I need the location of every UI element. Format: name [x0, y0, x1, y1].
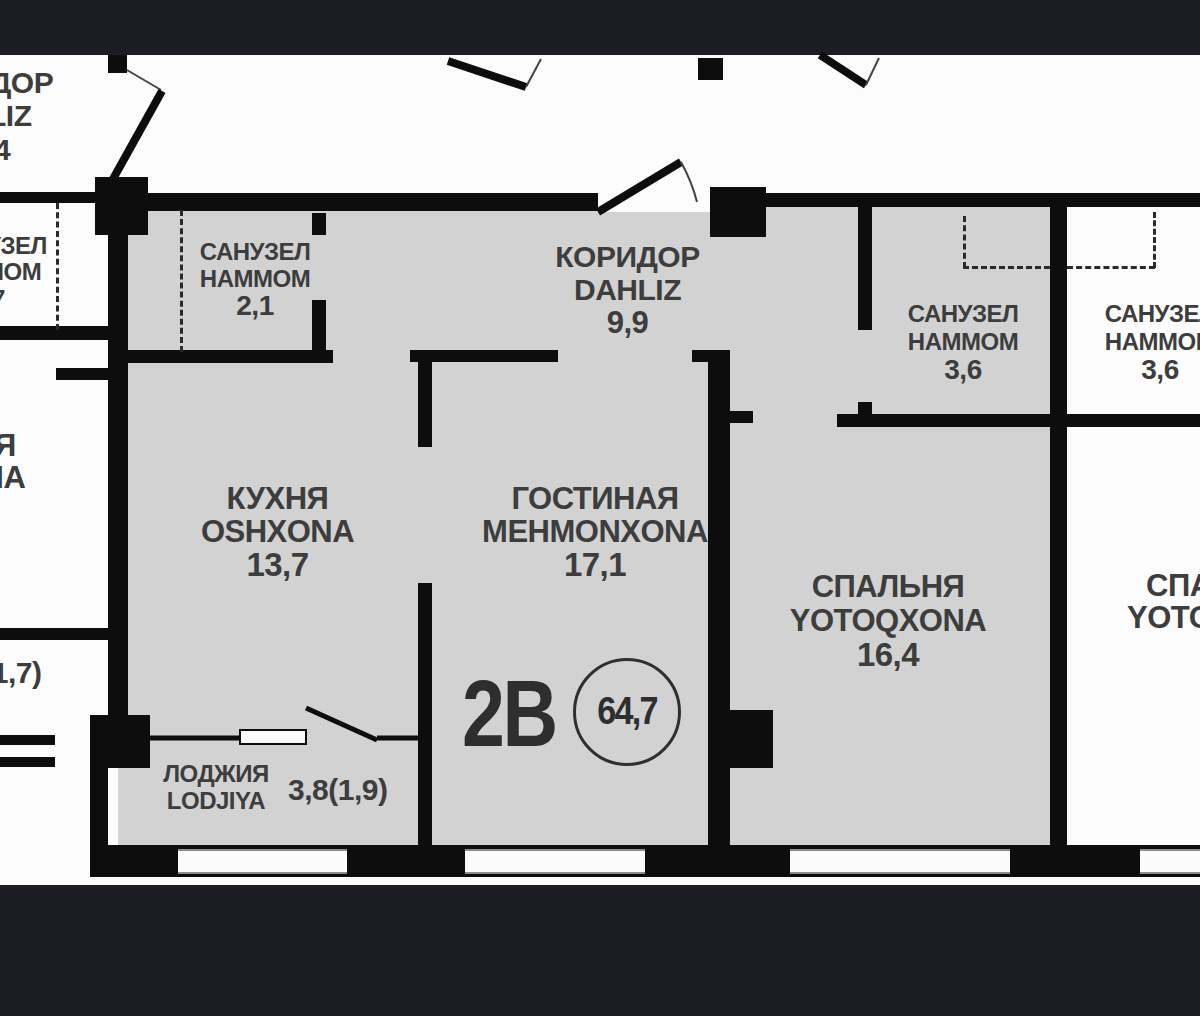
- room-name-uz: DAHLIZ: [530, 273, 725, 306]
- bath-main-wall: [858, 207, 872, 330]
- room-name-ru: КОРИДОР: [530, 240, 725, 273]
- room-name-uz: YOTOQXONA: [745, 604, 1031, 638]
- floor-plan-screenshot: САНУЗЕЛ HAMMOM 2,1 КОРИДОР DAHLIZ 9,9 КУ…: [0, 0, 1200, 1016]
- neighbor-corridor-area: 4: [0, 133, 10, 167]
- room-label-corridor: КОРИДОР DAHLIZ 9,9: [530, 240, 725, 339]
- room-label-bathroom-main: САНУЗЕЛ HAMMOM 3,6: [885, 300, 1041, 384]
- dashed-line: [1153, 212, 1156, 268]
- wall-corner-block: [95, 177, 148, 235]
- room-name-uz: HAMMOM: [885, 328, 1041, 356]
- room-name-ru: САНУЗЕЛ: [885, 300, 1041, 328]
- wall-block-bedroom: [727, 710, 773, 768]
- room-area: 9,9: [530, 306, 725, 339]
- neighbor-loggia-divider: [0, 628, 108, 640]
- room-name-uz: MEHMONXONA: [450, 515, 740, 548]
- total-area-value: 64,7: [581, 661, 673, 763]
- room-area: 3,6: [885, 356, 1041, 384]
- entry-wall-block: [710, 187, 766, 237]
- neighbor-kitchen-ru: НЯ: [0, 428, 16, 464]
- wall-neighbor-bath-bottom: [1067, 414, 1200, 427]
- room-name-ru: СПАЛЬНЯ: [745, 570, 1031, 604]
- room-area: 16,4: [745, 638, 1031, 672]
- wall-left-lower: [90, 768, 108, 848]
- room-area: 13,7: [160, 548, 395, 581]
- neighbor-corridor-ru: ДОР: [0, 66, 53, 100]
- neighbor-bedroom-ru: СПАЛЬНЯ: [1146, 568, 1200, 604]
- wall-left: [108, 233, 128, 718]
- room-label-living: ГОСТИНАЯ MEHMONXONA 17,1: [450, 482, 740, 581]
- room-label-bathroom-small: САНУЗЕЛ HAMMOM 2,1: [180, 238, 330, 319]
- bedroom-door-nub: [730, 411, 753, 423]
- wall-block-left: [90, 715, 150, 768]
- wall-top: [148, 193, 598, 211]
- room-label-loggia: ЛОДЖИЯ LODJIYA: [150, 760, 282, 814]
- wall: [0, 192, 97, 203]
- dashed-line: [56, 203, 59, 330]
- wall-neighbor-step: [0, 326, 108, 340]
- dashed-line: [963, 216, 966, 268]
- dashed-line: [963, 266, 1050, 269]
- window-living: [465, 849, 645, 874]
- neighbor-bath-ru: УЗЕЛ: [0, 232, 47, 260]
- wall-corridor-corner: [692, 350, 730, 362]
- wall-neighbor-step: [56, 368, 128, 380]
- room-name-ru: ГОСТИНАЯ: [450, 482, 740, 515]
- unit-number: 2В: [462, 660, 576, 768]
- wall-bedroom-top: [837, 414, 1067, 427]
- room-name-ru: САНУЗЕЛ: [180, 238, 330, 265]
- window-bedroom: [790, 849, 1010, 874]
- room-name-uz: OSHXONA: [160, 515, 395, 548]
- neighbor-kitchen-uz: ONA: [0, 460, 25, 496]
- neighbor-glazing: [0, 735, 55, 745]
- room-label-bathroom-neighbor: САНУЗЕЛ HAMMOM 3,6: [1080, 300, 1200, 384]
- window-loggia: [178, 849, 347, 874]
- wall-top-right: [766, 193, 1200, 207]
- room-area: 2,1: [180, 292, 330, 319]
- neighbor-bath-area: 7: [0, 285, 5, 313]
- wall-notch: [56, 340, 108, 368]
- wall-kitchen-living: [418, 583, 432, 848]
- entry-door-opening: [598, 188, 710, 212]
- wall-living-right: [708, 362, 730, 848]
- loggia-area: 3,8(1,9): [288, 773, 387, 807]
- neighbor-bedroom-uz: YOTOQXONA: [1127, 600, 1200, 636]
- bath-small-wall: [312, 213, 326, 235]
- dashed-line: [1067, 266, 1155, 269]
- neighbor-loggia-area: 3,4(1,7): [0, 656, 41, 690]
- room-area: 3,6: [1080, 356, 1200, 384]
- room-name-ru: КУХНЯ: [160, 482, 395, 515]
- room-name-uz: HAMMOM: [180, 265, 330, 292]
- wall-stub-top-left: [108, 55, 127, 73]
- wall-right-party: [1050, 203, 1067, 848]
- room-area: 17,1: [450, 548, 740, 581]
- total-area-circle: 64,7: [573, 658, 681, 766]
- hallway-column: [698, 58, 723, 80]
- room-label-kitchen: КУХНЯ OSHXONA 13,7: [160, 482, 395, 581]
- wall-kitchen-top: [108, 350, 333, 363]
- room-name-uz: HAMMOM: [1080, 328, 1200, 356]
- neighbor-glazing: [0, 757, 55, 767]
- wall-kitchen-living: [418, 362, 432, 447]
- room-name-ru: САНУЗЕЛ: [1080, 300, 1200, 328]
- bath-door-stub: [858, 402, 872, 414]
- neighbor-corridor-uz: LIZ: [0, 99, 32, 133]
- room-name-uz: LODJIYA: [150, 787, 282, 814]
- neighbor-bath-uz: МОМ: [0, 258, 41, 286]
- wall-living-top: [410, 350, 558, 362]
- room-name-ru: ЛОДЖИЯ: [150, 760, 282, 787]
- room-label-bedroom: СПАЛЬНЯ YOTOQXONA 16,4: [745, 570, 1031, 672]
- window-neighbor: [1140, 849, 1200, 874]
